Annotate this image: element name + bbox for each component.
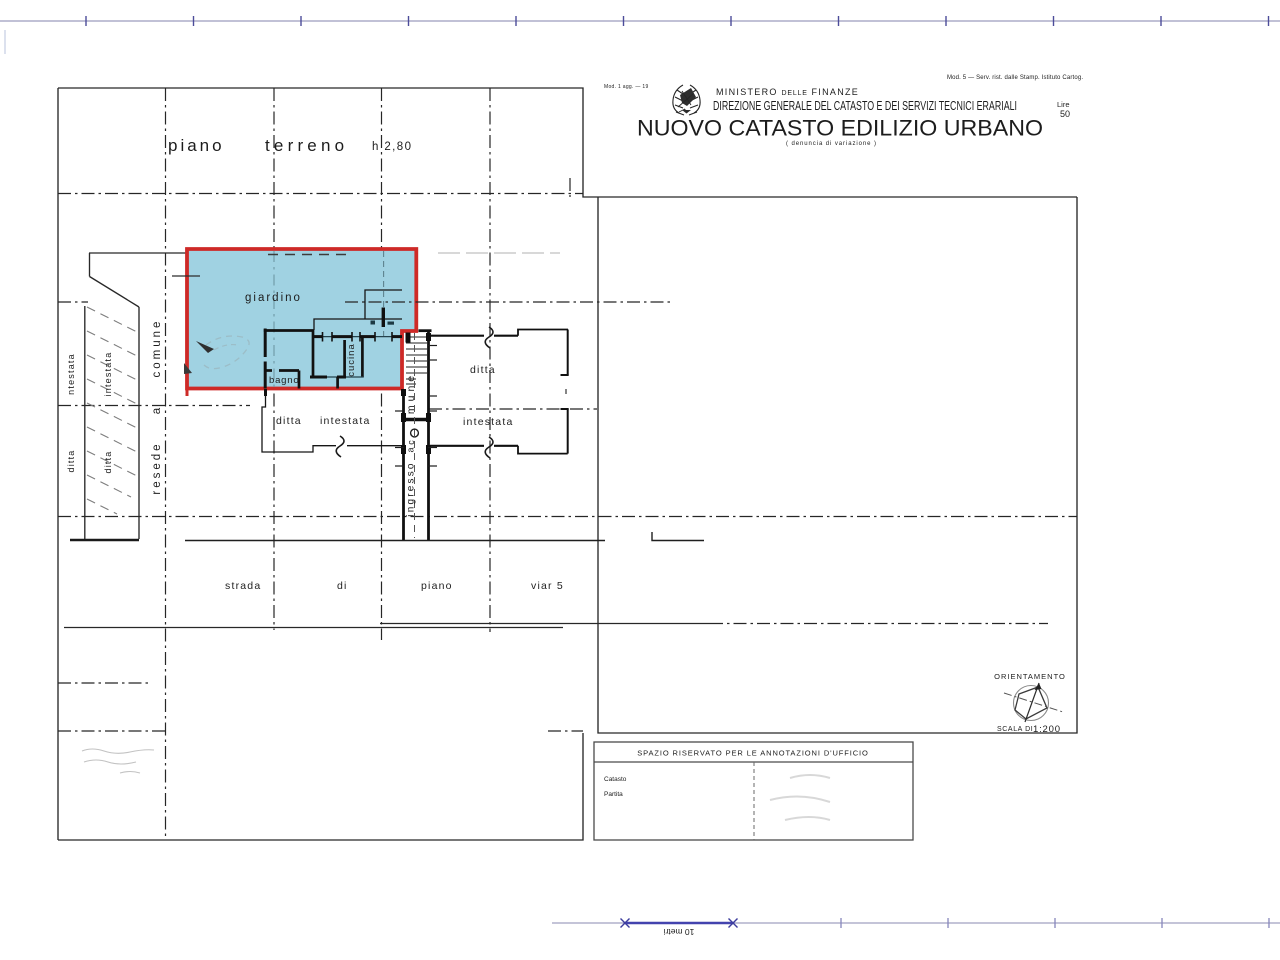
svg-text:ditta: ditta xyxy=(470,364,496,376)
svg-text:SPAZIO RISERVATO PER LE ANNOTA: SPAZIO RISERVATO PER LE ANNOTAZIONI D'UF… xyxy=(637,749,869,758)
svg-text:ditta: ditta xyxy=(66,449,76,472)
svg-text:ditta: ditta xyxy=(276,415,302,427)
svg-text:Mod. 5 — Serv. rist. dalle Sta: Mod. 5 — Serv. rist. dalle Stamp. Istitu… xyxy=(947,75,1083,81)
svg-text:c: c xyxy=(406,440,416,445)
svg-text:ditta: ditta xyxy=(103,450,113,473)
svg-text:ORIENTAMENTO: ORIENTAMENTO xyxy=(994,672,1066,681)
svg-text:Partita: Partita xyxy=(604,791,623,798)
svg-text:10 metri: 10 metri xyxy=(664,927,695,937)
svg-text:cucina: cucina xyxy=(346,343,357,376)
svg-text:comune: comune xyxy=(151,319,163,378)
svg-text:strada: strada xyxy=(225,580,261,592)
svg-text:50: 50 xyxy=(1060,109,1070,119)
svg-text:mune: mune xyxy=(405,372,417,414)
svg-text:intestata: intestata xyxy=(103,352,113,397)
svg-text:DIREZIONE GENERALE DEL CATASTO: DIREZIONE GENERALE DEL CATASTO E DEI SER… xyxy=(713,99,1017,113)
svg-text:resede: resede xyxy=(151,441,163,494)
svg-text:intestata: intestata xyxy=(463,416,514,428)
svg-text:di: di xyxy=(337,580,348,592)
svg-text:( denuncia di variazione ): ( denuncia di variazione ) xyxy=(786,141,876,147)
svg-text:viar 5: viar 5 xyxy=(531,580,564,592)
svg-text:terreno: terreno xyxy=(265,136,348,155)
svg-text:Catasto: Catasto xyxy=(604,776,627,783)
svg-text:Lire: Lire xyxy=(1057,100,1070,109)
svg-text:a: a xyxy=(151,407,163,414)
svg-text:ntestata: ntestata xyxy=(66,353,76,395)
svg-text:MINISTERO DELLE FINANZE: MINISTERO DELLE FINANZE xyxy=(716,87,859,97)
svg-text:giardino: giardino xyxy=(245,292,302,304)
svg-text:ingresso: ingresso xyxy=(406,461,417,516)
svg-text:piano: piano xyxy=(421,580,453,592)
svg-text:a: a xyxy=(406,447,416,452)
svg-text:Mod. 1 agg. — 19: Mod. 1 agg. — 19 xyxy=(604,84,649,90)
svg-text:intestata: intestata xyxy=(320,415,371,427)
svg-text:1:200: 1:200 xyxy=(1033,724,1061,735)
svg-text:SCALA DI: SCALA DI xyxy=(997,726,1033,733)
svg-text:bagno: bagno xyxy=(269,375,299,386)
svg-text:NUOVO CATASTO EDILIZIO URBANO: NUOVO CATASTO EDILIZIO URBANO xyxy=(637,116,1043,141)
svg-text:h 2,80: h 2,80 xyxy=(372,141,412,153)
svg-text:piano: piano xyxy=(168,136,225,155)
